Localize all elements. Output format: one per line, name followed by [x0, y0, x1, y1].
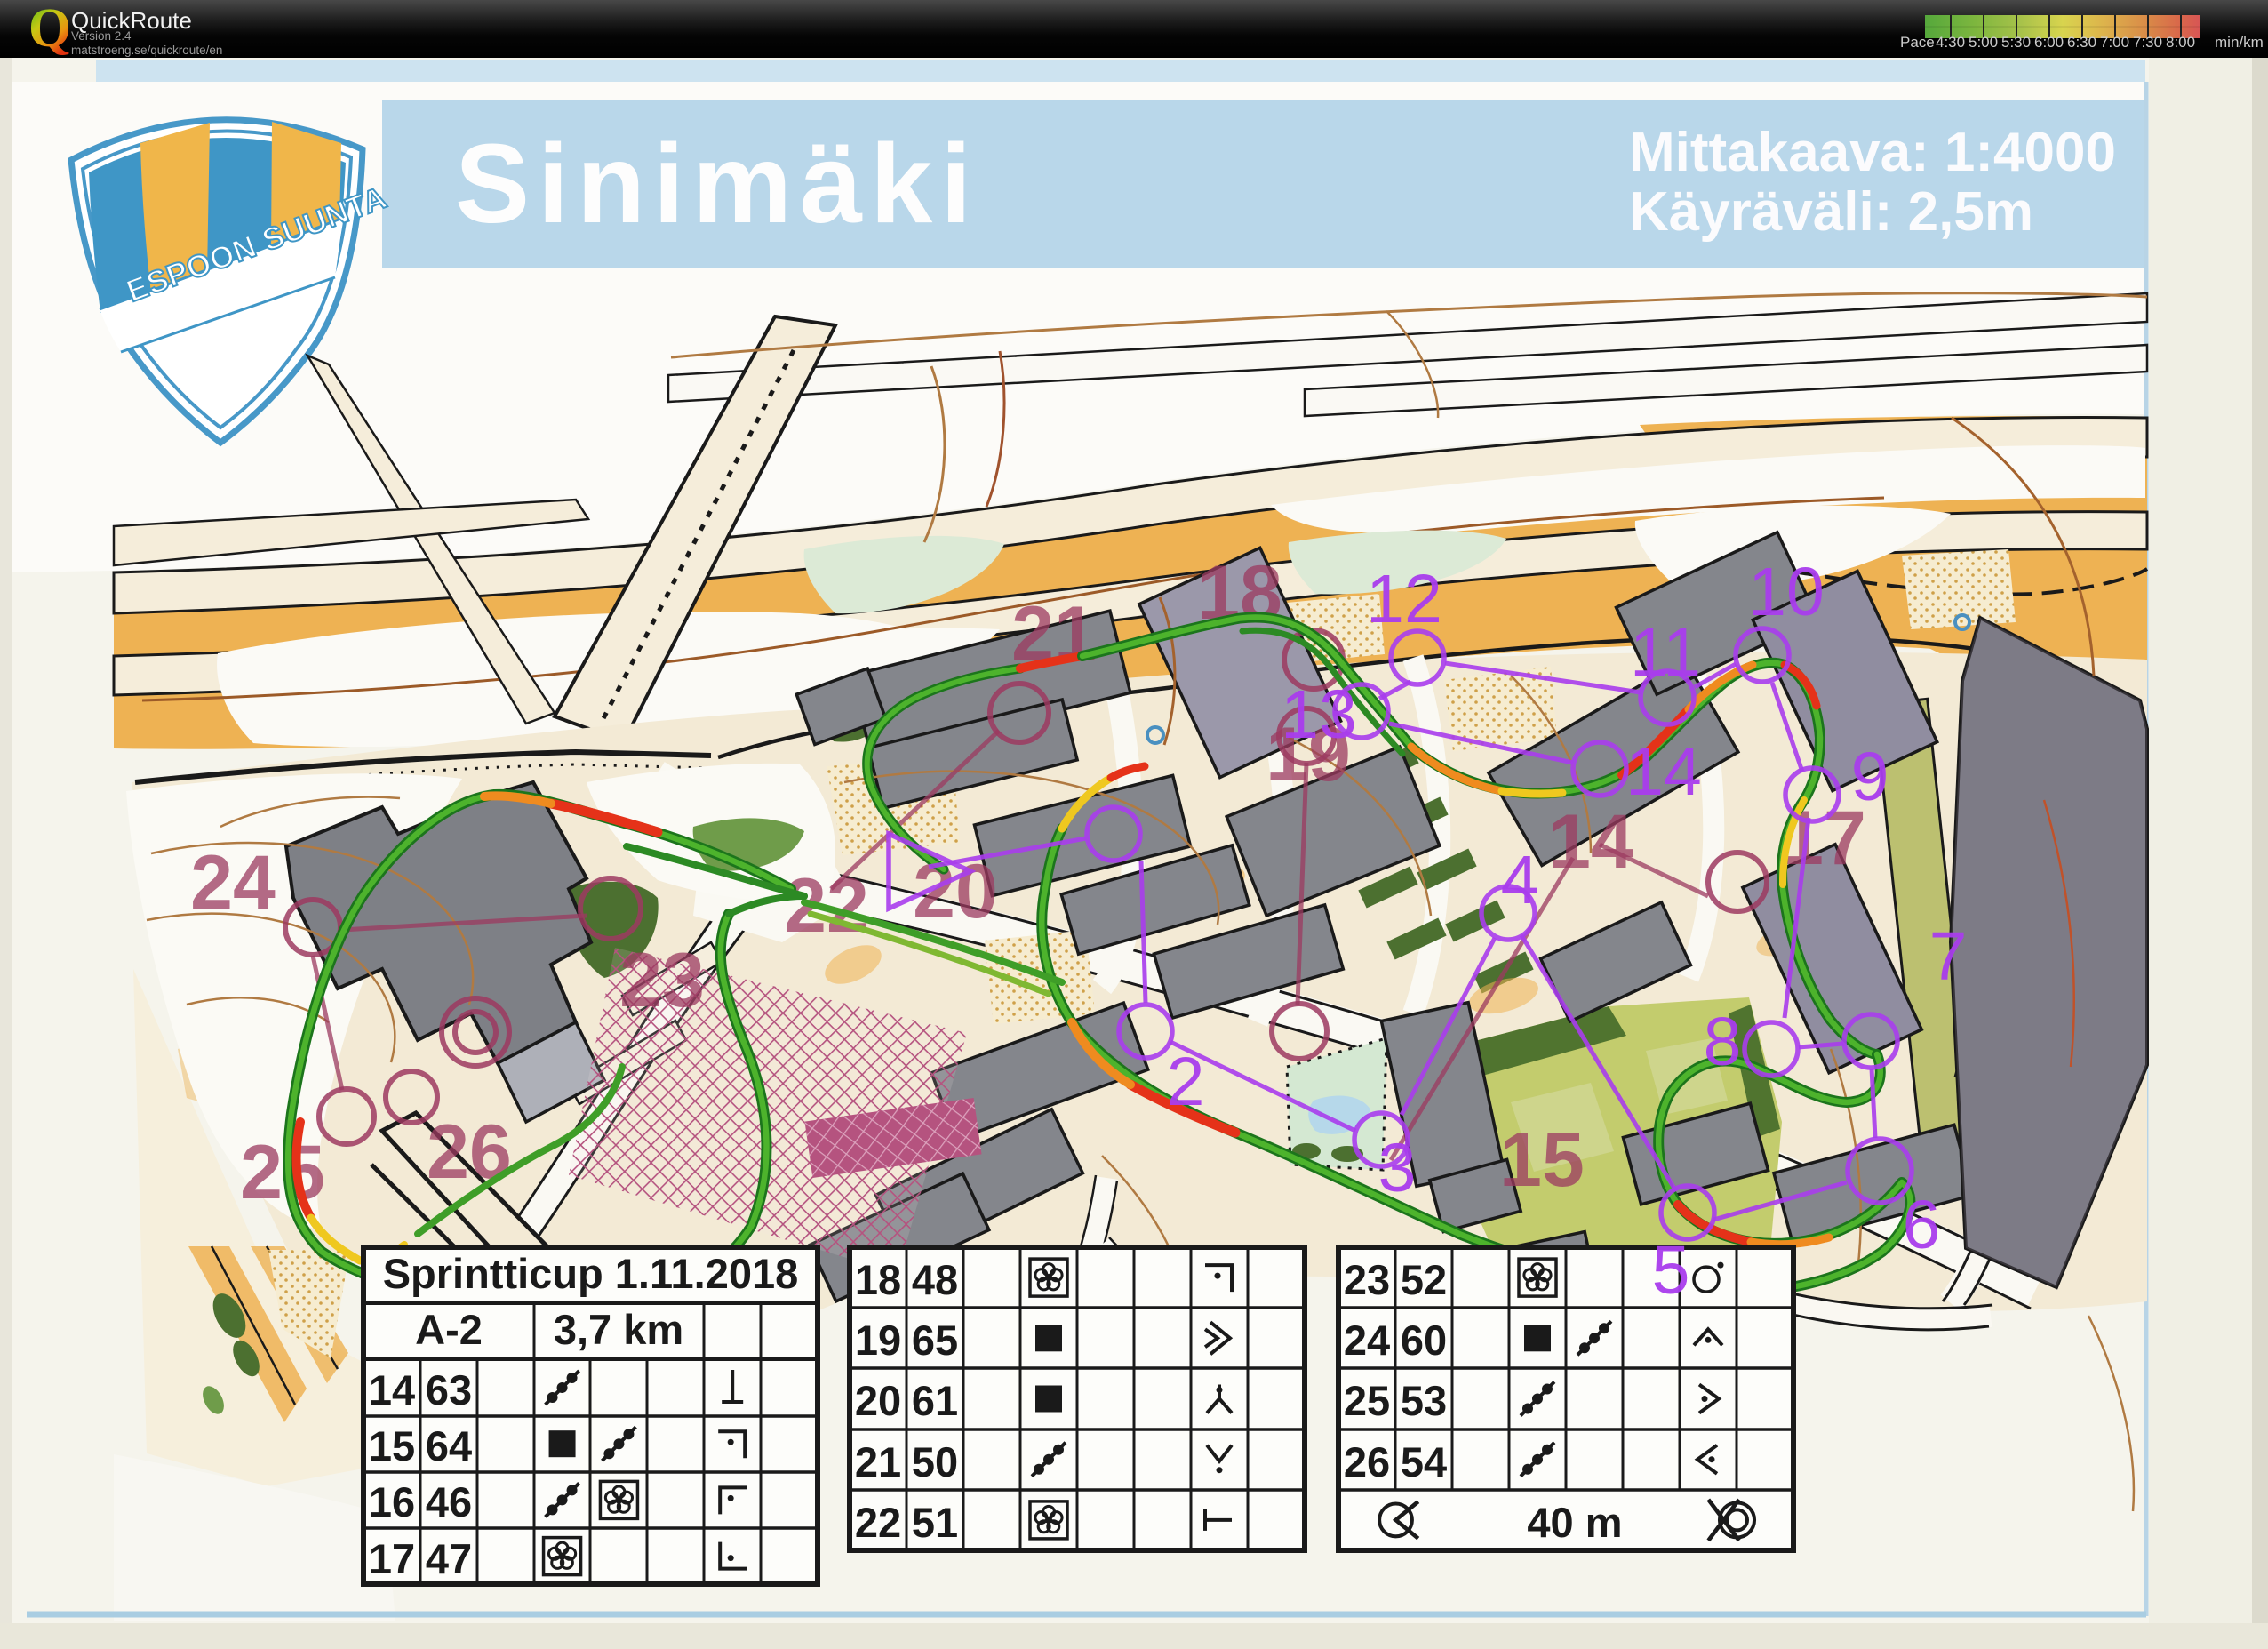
- svg-text:64: 64: [426, 1422, 472, 1469]
- svg-text:48: 48: [912, 1256, 958, 1303]
- svg-text:63: 63: [426, 1366, 472, 1413]
- svg-text:47: 47: [426, 1535, 472, 1582]
- svg-text:14: 14: [1548, 799, 1633, 885]
- svg-text:23: 23: [1344, 1256, 1390, 1303]
- svg-text:3,7 km: 3,7 km: [554, 1306, 683, 1353]
- svg-text:11: 11: [1630, 614, 1701, 691]
- svg-text:61: 61: [912, 1377, 958, 1424]
- svg-text:25: 25: [1344, 1377, 1390, 1424]
- svg-text:18: 18: [855, 1256, 901, 1303]
- svg-text:Mittakaava: 1:4000: Mittakaava: 1:4000: [1629, 122, 2116, 183]
- svg-text:53: 53: [1401, 1377, 1447, 1424]
- svg-text:12: 12: [1366, 561, 1442, 637]
- svg-text:7: 7: [1929, 918, 1968, 995]
- svg-text:16: 16: [369, 1478, 415, 1525]
- svg-text:24: 24: [190, 840, 276, 925]
- svg-text:23: 23: [619, 938, 705, 1023]
- svg-text:19: 19: [855, 1317, 901, 1364]
- svg-text:A-2: A-2: [415, 1306, 483, 1353]
- svg-text:65: 65: [912, 1317, 958, 1364]
- svg-text:6: 6: [1903, 1187, 1941, 1263]
- svg-text:3: 3: [1378, 1130, 1417, 1206]
- svg-text:Käyräväli: 2,5m: Käyräväli: 2,5m: [1629, 181, 2033, 243]
- svg-text:13: 13: [1281, 676, 1357, 753]
- svg-text:10: 10: [1748, 554, 1825, 630]
- svg-text:14: 14: [369, 1366, 415, 1413]
- svg-text:20: 20: [855, 1377, 901, 1424]
- svg-text:9: 9: [1851, 739, 1889, 815]
- svg-text:2: 2: [1167, 1044, 1205, 1120]
- svg-text:21: 21: [855, 1438, 901, 1485]
- svg-text:14: 14: [1625, 733, 1702, 810]
- svg-text:4: 4: [1501, 842, 1539, 918]
- svg-text:Sprintticup 1.11.2018: Sprintticup 1.11.2018: [383, 1250, 799, 1297]
- svg-text:50: 50: [912, 1438, 958, 1485]
- svg-text:Q: Q: [28, 3, 71, 56]
- svg-text:17: 17: [369, 1535, 415, 1582]
- svg-text:22: 22: [855, 1499, 901, 1546]
- svg-text:51: 51: [912, 1499, 958, 1546]
- svg-text:52: 52: [1401, 1256, 1447, 1303]
- svg-text:8: 8: [1704, 1004, 1742, 1080]
- svg-text:26: 26: [1344, 1438, 1390, 1485]
- svg-text:5: 5: [1652, 1232, 1690, 1309]
- svg-text:25: 25: [240, 1130, 325, 1215]
- svg-text:26: 26: [427, 1109, 512, 1195]
- svg-text:60: 60: [1401, 1317, 1447, 1364]
- svg-text:46: 46: [426, 1478, 472, 1525]
- svg-text:54: 54: [1401, 1438, 1447, 1485]
- svg-text:40 m: 40 m: [1527, 1499, 1622, 1546]
- svg-text:24: 24: [1344, 1317, 1390, 1364]
- svg-text:15: 15: [369, 1422, 415, 1469]
- svg-text:Sinimäki: Sinimäki: [455, 121, 979, 246]
- svg-text:15: 15: [1499, 1117, 1585, 1203]
